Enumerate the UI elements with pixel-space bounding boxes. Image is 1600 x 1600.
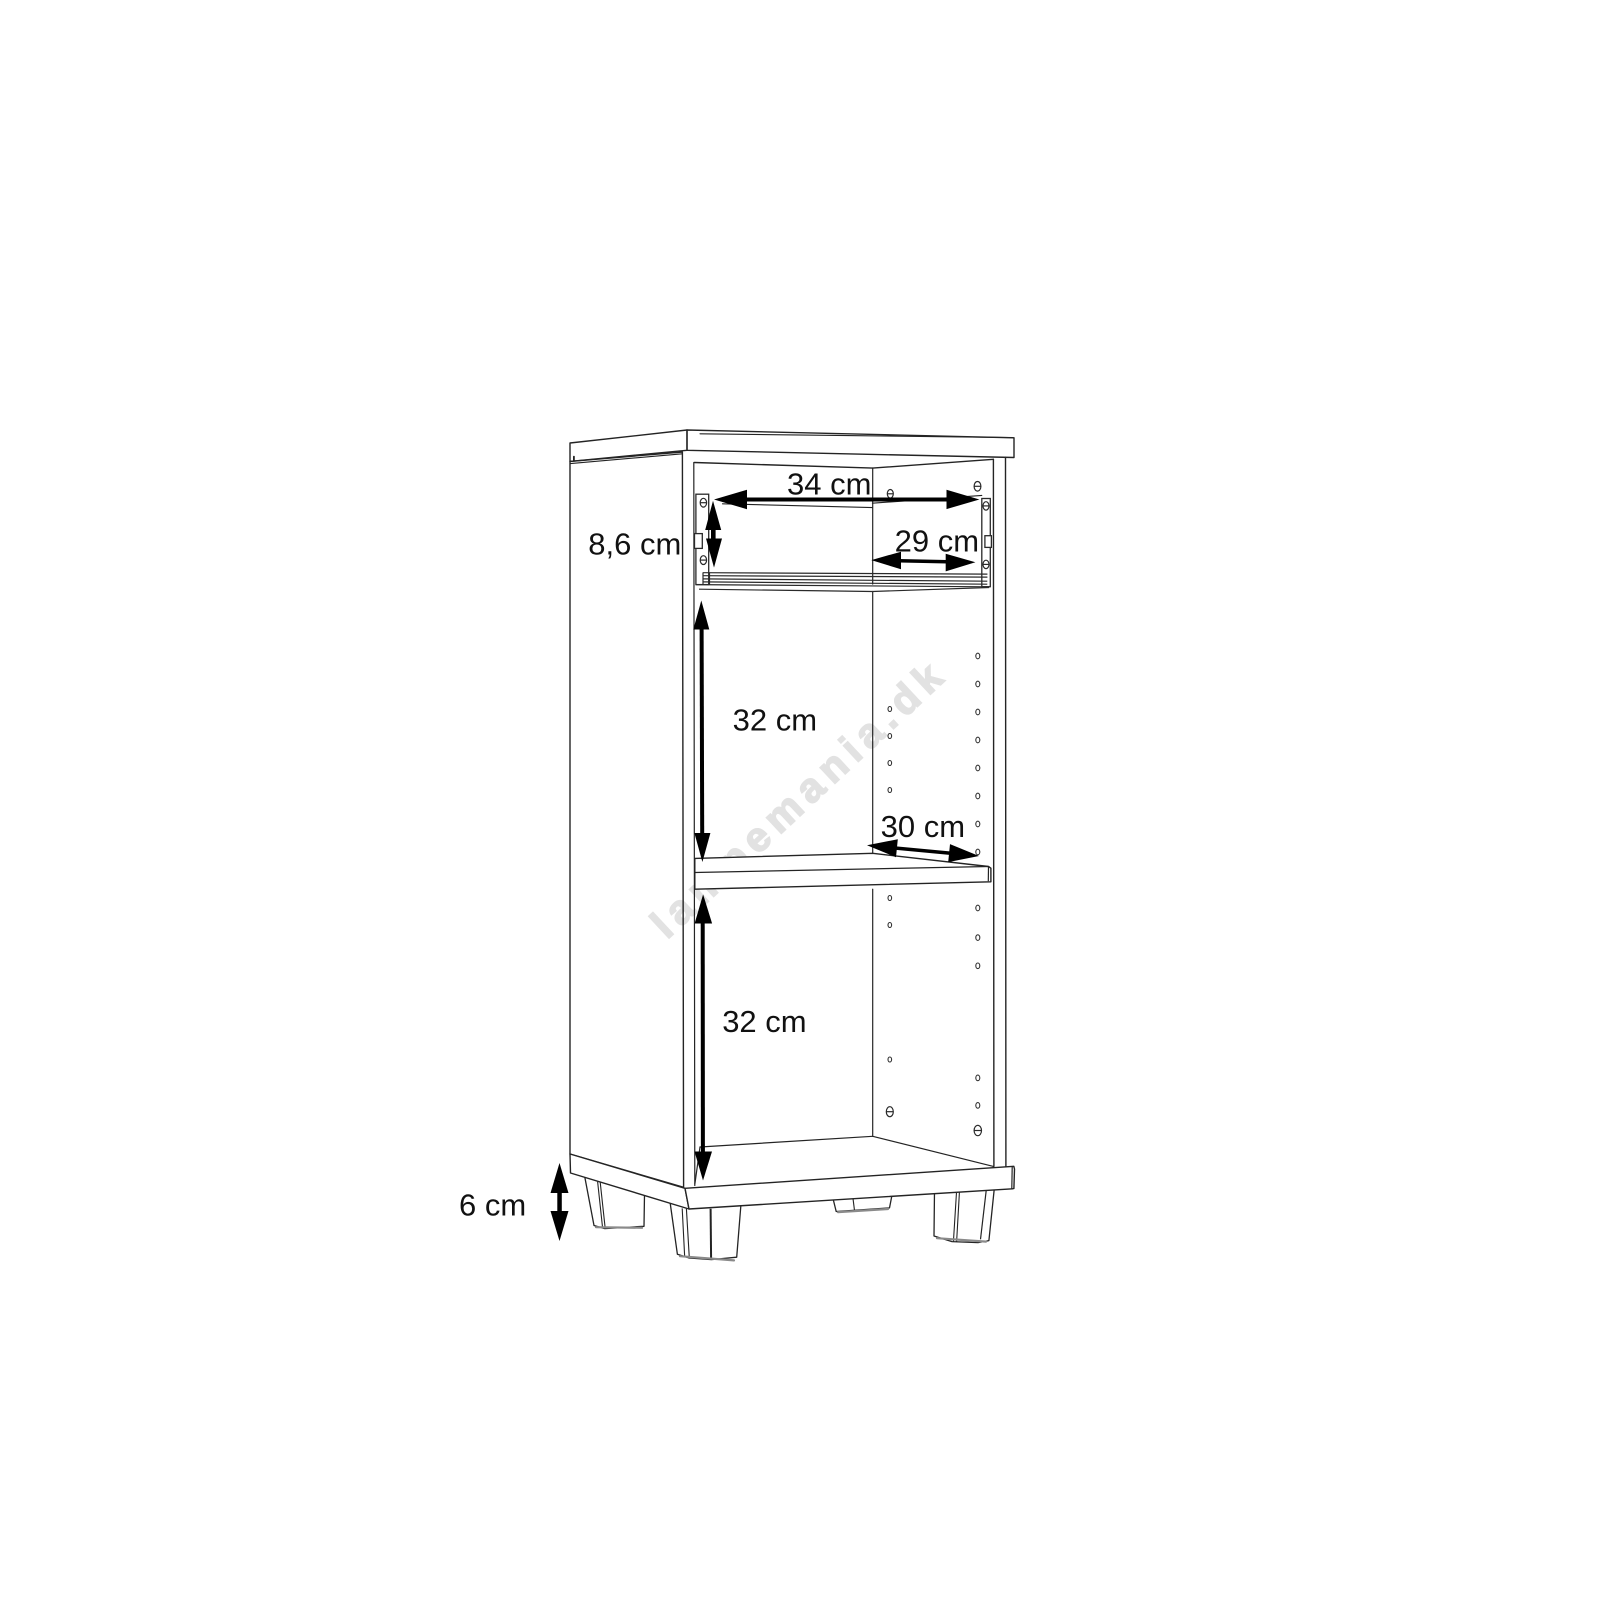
svg-text:8,6 cm: 8,6 cm [588, 526, 681, 561]
svg-text:32 cm: 32 cm [722, 1004, 806, 1039]
svg-text:32 cm: 32 cm [733, 702, 817, 737]
svg-text:29 cm: 29 cm [895, 524, 979, 559]
svg-text:30 cm: 30 cm [881, 809, 965, 844]
svg-text:6 cm: 6 cm [459, 1188, 526, 1223]
svg-text:34 cm: 34 cm [787, 467, 871, 502]
